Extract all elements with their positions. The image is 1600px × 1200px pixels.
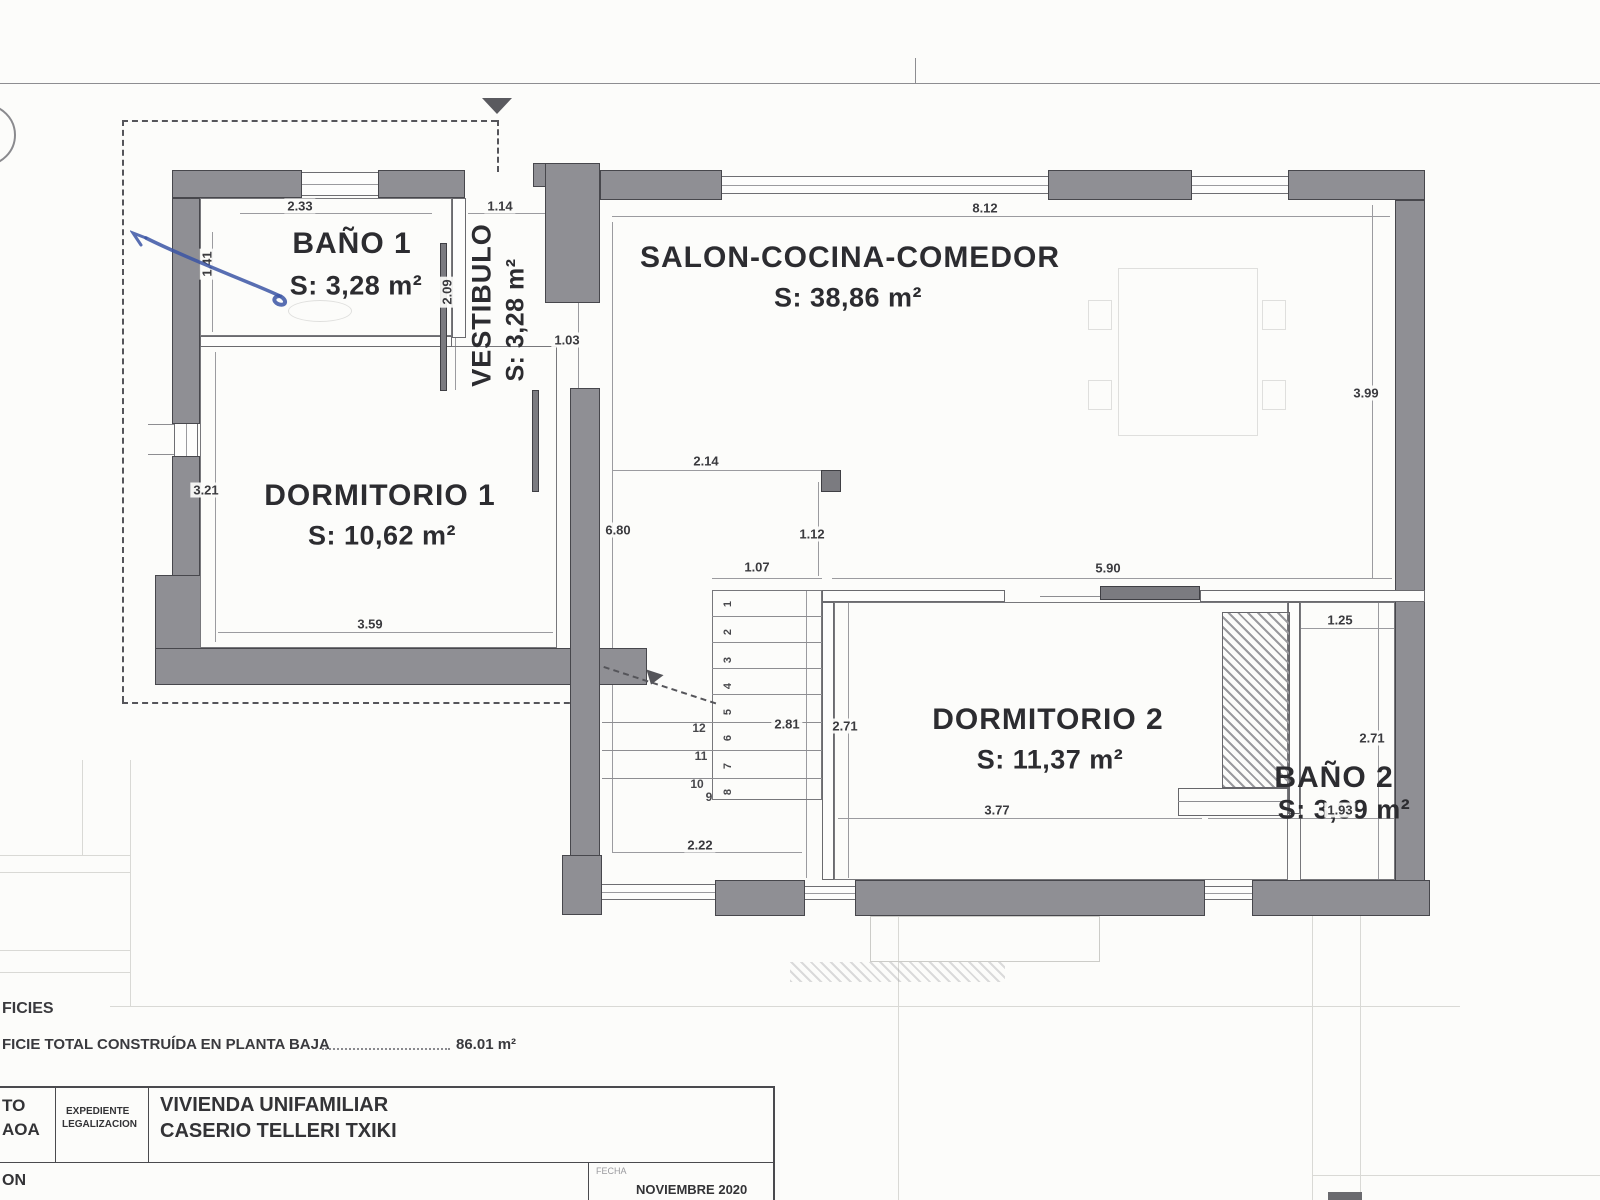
window-opening [1192, 176, 1288, 194]
titleblock-col1-line2: AOA [2, 1120, 40, 1140]
dimension-label: 1.93 [1324, 803, 1355, 818]
stair-tread [712, 642, 822, 643]
chair-ghost [1262, 300, 1286, 330]
chair-ghost [1088, 380, 1112, 410]
stair-step-number: 10 [690, 777, 703, 791]
room-area-dorm2: S: 11,37 m² [977, 745, 1124, 776]
partition-wall [822, 590, 1005, 602]
wall-segment [562, 855, 602, 915]
dimension-label: 1.25 [1324, 613, 1355, 628]
room-label-bano2: BAÑO 2 [1274, 761, 1393, 795]
stair-step-number: 7 [722, 763, 734, 769]
wall-segment [1048, 170, 1192, 200]
ref-line [0, 950, 130, 951]
stair-step-number: 11 [695, 749, 708, 763]
stair-step-number: 1 [722, 601, 734, 607]
stair-tread [712, 694, 822, 695]
stair-step-number: 3 [722, 657, 734, 663]
title-block-divider [0, 1162, 775, 1163]
shelf-line [1178, 801, 1290, 802]
partition-wall [200, 336, 452, 347]
window-opening [1205, 886, 1252, 900]
eaves-dashed-left [122, 120, 124, 702]
sheet-top-tick [915, 58, 916, 83]
wall-segment [545, 163, 600, 303]
dimension-label: 2.33 [284, 199, 315, 214]
stair-tread [602, 750, 822, 751]
sliding-door-panel [1100, 586, 1200, 600]
titleblock-row2-left: ON [2, 1172, 26, 1190]
total-area-value: 86.01 m² [456, 1036, 516, 1053]
project-title-line1: VIVIENDA UNIFAMILIAR [160, 1094, 388, 1117]
stair-tread [712, 616, 822, 617]
ref-line [1312, 1175, 1600, 1176]
dimension-label: 3.21 [190, 483, 221, 498]
stair-step-number: 12 [692, 721, 705, 735]
superficies-heading: FICIES [2, 1000, 54, 1018]
window-opening [174, 424, 198, 456]
ref-line [0, 855, 130, 856]
total-area-text: FICIE TOTAL CONSTRUÍDA EN PLANTA BAJA [2, 1036, 330, 1053]
fecha-label: FECHA [596, 1166, 627, 1176]
legalizacion-label: LEGALIZACION [62, 1119, 137, 1130]
partition-wall [822, 602, 834, 880]
dimension-label: 2.71 [1356, 731, 1387, 746]
partition-wall [1200, 590, 1425, 602]
dimension-label: 3.77 [981, 803, 1012, 818]
chair-ghost [1088, 300, 1112, 330]
stair-tread [712, 668, 822, 669]
partition-wall [452, 198, 466, 338]
title-block-divider [148, 1086, 149, 1162]
ref-line [0, 972, 130, 973]
titleblock-col1-line1: TO [2, 1096, 25, 1116]
ref-line [1360, 916, 1361, 1200]
wall-segment [172, 170, 302, 198]
dim-line [712, 578, 822, 579]
door-leaf [440, 243, 447, 391]
window-opening [302, 172, 378, 196]
ref-line [130, 760, 131, 1006]
title-block-divider [588, 1162, 589, 1200]
dimension-label: 3.59 [354, 617, 385, 632]
dimension-label: 8.12 [969, 201, 1000, 216]
wall-segment [1252, 880, 1430, 916]
dimension-label: 2.09 [440, 276, 455, 307]
eaves-dashed-bottom [122, 702, 600, 704]
porch-outline [870, 916, 1100, 962]
dining-table-ghost [1118, 268, 1258, 436]
eaves-dashed-top [122, 120, 497, 122]
stair-step-number: 8 [722, 789, 734, 795]
dim-line [832, 578, 1392, 579]
eaves-dashed-right [497, 120, 499, 172]
north-triangle-marker [482, 98, 512, 114]
title-block-divider [55, 1086, 56, 1162]
ref-line [82, 760, 83, 855]
pen-annotation-arrow [130, 222, 330, 322]
dimension-label: 1.07 [741, 560, 772, 575]
column [821, 470, 841, 492]
chair-ghost [1262, 380, 1286, 410]
window-opening [722, 176, 1048, 194]
stair-tread [602, 778, 822, 779]
dimension-label: 3.99 [1350, 386, 1381, 401]
room-label-salon: SALON-COCINA-COMEDOR [640, 241, 1060, 275]
room-inner-face [834, 602, 1288, 880]
door-leaf [532, 390, 539, 492]
dimension-label: 6.80 [602, 523, 633, 538]
door-track-line [1040, 596, 1100, 597]
window-sill-line [148, 454, 174, 455]
ref-line [1312, 916, 1313, 1200]
dotted-leader [322, 1048, 450, 1050]
wall-segment [855, 880, 1205, 916]
dim-line [612, 470, 822, 471]
dimension-label: 1.12 [796, 527, 827, 542]
wall-segment [1288, 170, 1425, 200]
room-label-dorm2: DORMITORIO 2 [932, 703, 1163, 737]
floor-plan-sheet: 1 2 3 4 5 6 7 8 12 11 10 9 BAÑO 1 S: 3,2… [0, 0, 1600, 1200]
stair-step-number: 2 [722, 629, 734, 635]
dimension-label: 2.81 [771, 717, 802, 732]
dimension-label: 2.71 [829, 719, 860, 734]
wall-segment [378, 170, 465, 198]
ref-line [0, 872, 130, 873]
dimension-label: 1.03 [551, 333, 582, 348]
room-area-dorm1: S: 10,62 m² [308, 521, 456, 552]
fecha-value: NOVIEMBRE 2020 [636, 1182, 747, 1197]
scan-smudge [1328, 1192, 1362, 1200]
stair-step-number: 5 [722, 709, 734, 715]
expediente-label: EXPEDIENTE [66, 1106, 129, 1117]
dimension-label: 1.14 [484, 199, 515, 214]
window-opening [602, 884, 715, 900]
sheet-top-line [0, 83, 1600, 84]
shelf [1178, 788, 1290, 816]
room-area-salon: S: 38,86 m² [774, 283, 922, 314]
window-opening [805, 886, 855, 900]
window-sill-line [148, 424, 174, 425]
room-label-vestibulo: VESTIBULO [467, 223, 498, 387]
dimension-label: 2.22 [684, 838, 715, 853]
dimension-label: 2.14 [690, 454, 721, 469]
ref-line [110, 1006, 1460, 1007]
porch-hatch [790, 962, 1005, 982]
room-label-dorm1: DORMITORIO 1 [264, 479, 495, 513]
room-area-vestibulo: S: 3,28 m² [502, 258, 531, 381]
project-title-line2: CASERIO TELLERI TXIKI [160, 1120, 397, 1143]
wall-segment [570, 388, 600, 858]
stair-step-number: 9 [706, 790, 713, 804]
edge-arc [0, 104, 16, 166]
stair-step-number: 6 [722, 735, 734, 741]
wall-segment [600, 170, 722, 200]
wall-segment [715, 880, 805, 916]
stair-step-number: 4 [722, 683, 734, 689]
dim-line [612, 216, 1390, 217]
dimension-label: 5.90 [1092, 561, 1123, 576]
